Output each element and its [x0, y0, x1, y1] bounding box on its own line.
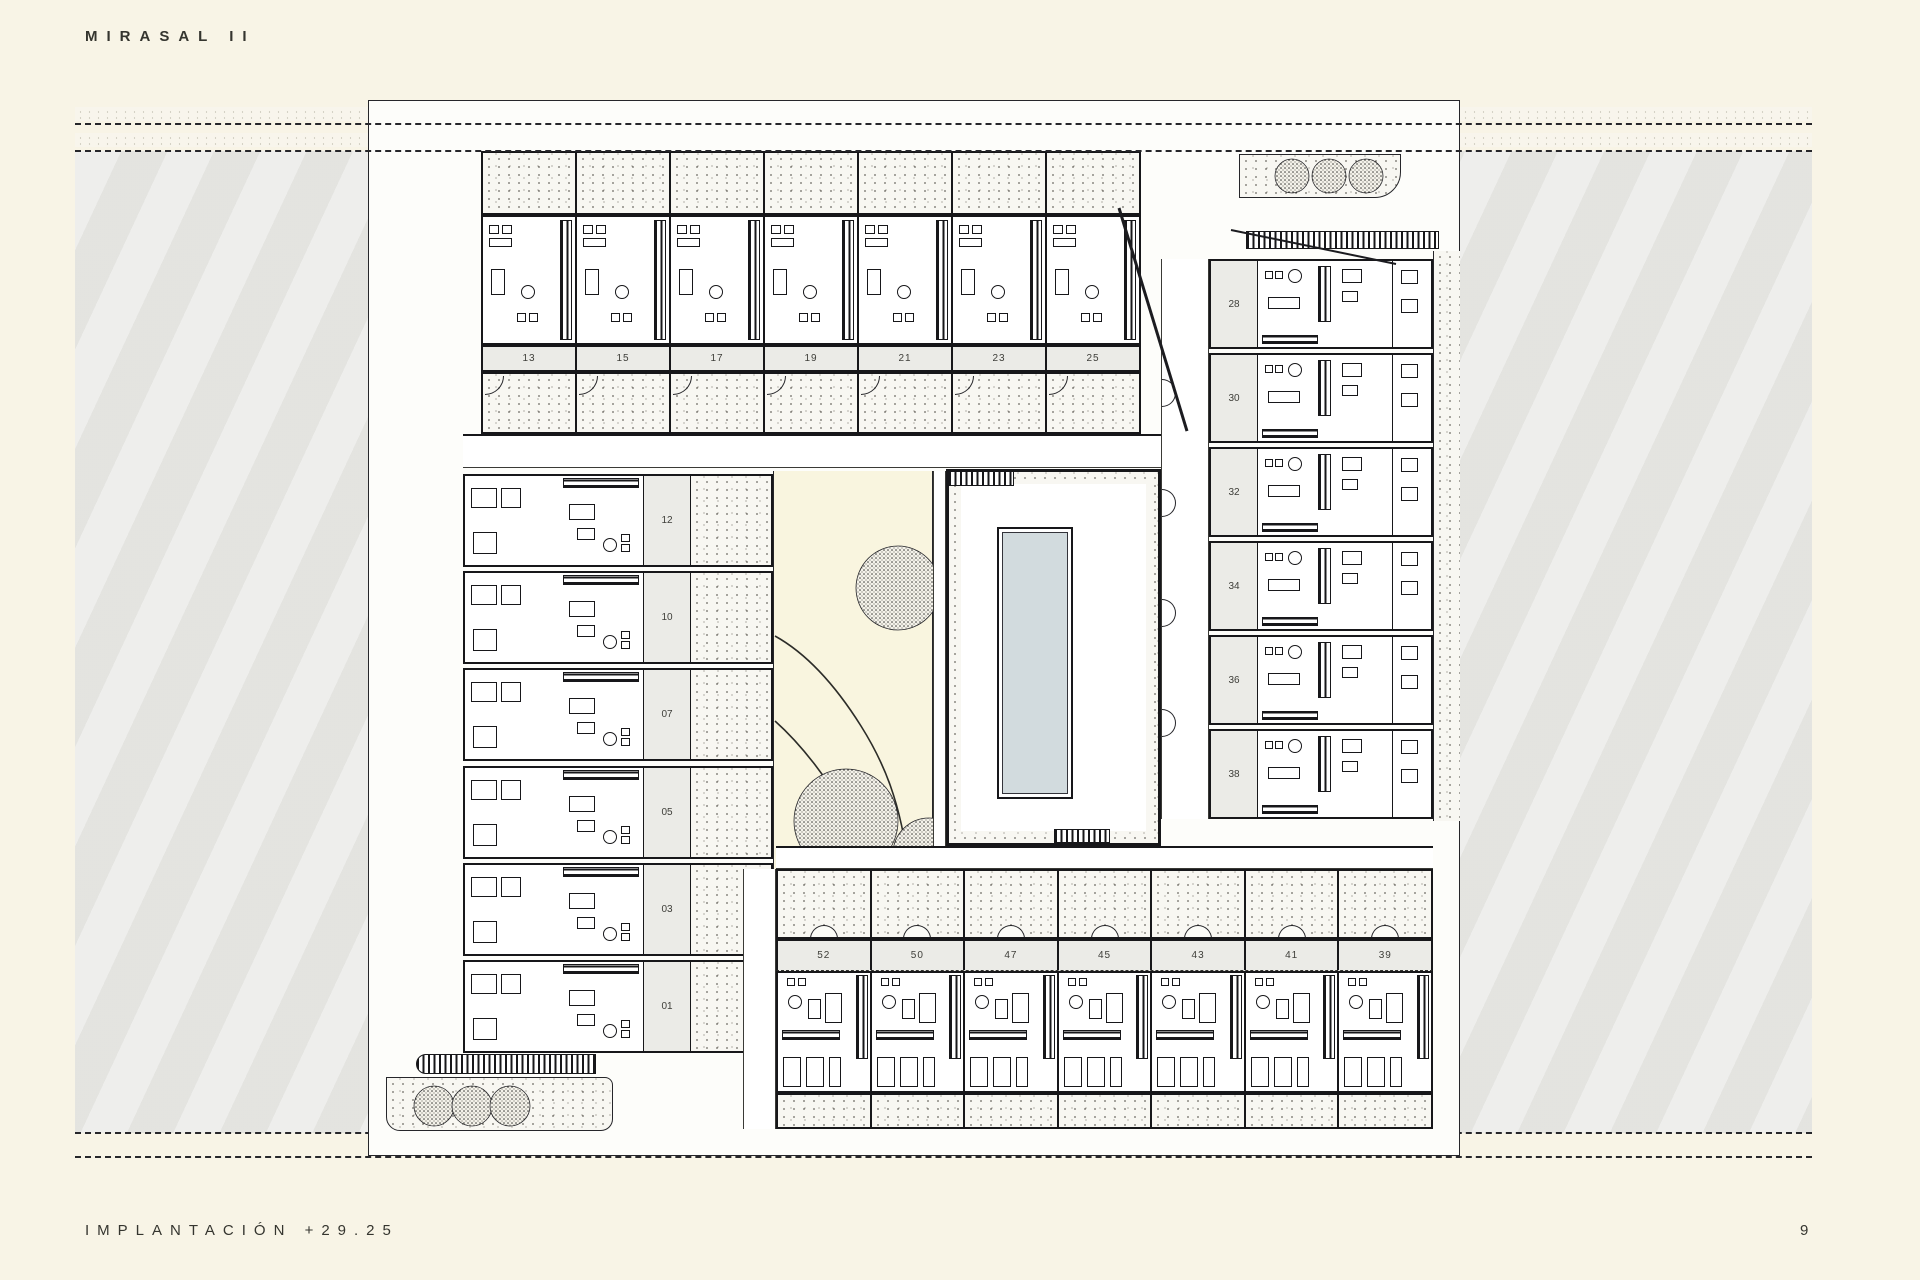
plan-cell [857, 153, 951, 213]
plan-cell [1057, 973, 1151, 1091]
furniture-icon [811, 313, 820, 322]
unit-number-label: 36 [1211, 637, 1258, 723]
furniture-icon [473, 532, 497, 554]
unit-number-label: 47 [963, 941, 1057, 970]
unit-number-label: 15 [575, 347, 669, 370]
unit-terrace [691, 768, 771, 857]
furniture-icon [569, 698, 595, 714]
unit-number-label: 39 [1337, 941, 1431, 970]
stairs-icon [969, 1030, 1027, 1040]
unit-number: 52 [817, 950, 830, 961]
plan-cell [963, 1095, 1057, 1127]
stairs-icon [1262, 617, 1318, 626]
unit-number: 34 [1228, 581, 1239, 592]
unit-number-label: 43 [1150, 941, 1244, 970]
furniture-icon [679, 269, 693, 295]
furniture-icon [501, 488, 521, 508]
furniture-icon [1268, 673, 1300, 685]
left-wing: 121007050301 [463, 474, 773, 1053]
furniture-icon [1359, 978, 1367, 986]
table-icon [1288, 645, 1302, 659]
furniture-icon [1401, 646, 1418, 660]
pool-hall-floor [961, 484, 1146, 831]
door-swing-icon [955, 376, 974, 395]
stairs-icon [563, 964, 639, 974]
top-row-interiors [481, 215, 1141, 345]
unit-number: 50 [911, 950, 924, 961]
furniture-icon [1401, 458, 1418, 472]
unit-terrace [1393, 637, 1431, 723]
unit-number-label: 01 [644, 962, 691, 1051]
furniture-icon [623, 313, 632, 322]
table-icon [1288, 269, 1302, 283]
furniture-icon [1276, 999, 1289, 1019]
plan-cell [870, 973, 964, 1091]
unit-floorplan [465, 476, 644, 565]
bottom-row-interiors [776, 971, 1433, 1093]
table-icon [521, 285, 535, 299]
furniture-icon [808, 999, 821, 1019]
furniture-icon [583, 225, 593, 234]
table-icon [1069, 995, 1083, 1009]
table-icon [603, 635, 617, 649]
furniture-icon [1266, 978, 1274, 986]
unit-floorplan [1258, 355, 1393, 441]
furniture-icon [577, 1014, 595, 1026]
unit-number: 38 [1228, 769, 1239, 780]
door-swing-icon [485, 376, 504, 395]
furniture-icon [1268, 391, 1300, 403]
table-icon [991, 285, 1005, 299]
furniture-icon [611, 313, 620, 322]
furniture-icon [1268, 579, 1300, 591]
stairs-icon [1136, 975, 1148, 1059]
tree-icons [1240, 155, 1402, 199]
unit-row: 05 [463, 766, 773, 859]
furniture-icon [621, 923, 630, 931]
walkway [1161, 259, 1209, 819]
door-swing-icon [903, 925, 931, 937]
table-icon [603, 830, 617, 844]
furniture-icon [1342, 573, 1358, 584]
stairs-icon [1262, 711, 1318, 720]
stairs-icon [563, 770, 639, 780]
plan-cell [1244, 1095, 1338, 1127]
furniture-icon [489, 225, 499, 234]
furniture-icon [1367, 1057, 1385, 1087]
furniture-icon [1012, 993, 1029, 1023]
door-swing-icon [1091, 925, 1119, 937]
unit-number: 17 [710, 353, 723, 364]
unit-terrace [691, 476, 771, 565]
stairs-icon [560, 220, 572, 340]
plan-cell [1045, 217, 1139, 343]
furniture-icon [1199, 993, 1216, 1023]
door-swing-icon [1278, 925, 1306, 937]
furniture-icon [621, 728, 630, 736]
furniture-icon [621, 933, 630, 941]
furniture-icon [974, 978, 982, 986]
furniture-icon [1342, 645, 1362, 659]
furniture-icon [1342, 363, 1362, 377]
corridor [463, 434, 1181, 468]
furniture-icon [1401, 581, 1418, 595]
furniture-icon [959, 238, 982, 247]
furniture-icon [798, 978, 806, 986]
furniture-icon [806, 1057, 824, 1087]
plan-cell [669, 153, 763, 213]
furniture-icon [865, 225, 875, 234]
plan-cell [951, 153, 1045, 213]
entry-grille [416, 1054, 596, 1074]
furniture-icon [517, 313, 526, 322]
unit-number-label: 23 [951, 347, 1045, 370]
unit-row: 07 [463, 668, 773, 761]
unit-number: 28 [1228, 299, 1239, 310]
stairs-icon [563, 575, 639, 585]
unit-number-label: 50 [870, 941, 964, 970]
furniture-icon [787, 978, 795, 986]
stairs-icon [782, 1030, 840, 1040]
furniture-icon [1081, 313, 1090, 322]
furniture-icon [1401, 740, 1418, 754]
furniture-icon [473, 726, 497, 748]
unit-row: 38 [1209, 729, 1433, 819]
furniture-icon [1401, 299, 1418, 313]
furniture-icon [621, 826, 630, 834]
tree-icon [490, 1086, 530, 1126]
furniture-icon [1251, 1057, 1269, 1087]
furniture-icon [1401, 393, 1418, 407]
plan-cell [575, 153, 669, 213]
site-plan: 13151719212325 121007050301 [368, 100, 1460, 1156]
furniture-icon [621, 534, 630, 542]
furniture-icon [1161, 978, 1169, 986]
furniture-icon [959, 225, 969, 234]
furniture-icon [577, 625, 595, 637]
furniture-icon [1297, 1057, 1309, 1087]
furniture-icon [1066, 225, 1076, 234]
furniture-icon [867, 269, 881, 295]
unit-number: 36 [1228, 675, 1239, 686]
unit-number-label: 34 [1211, 543, 1258, 629]
right-wing-terrace-strip [1433, 251, 1460, 821]
furniture-icon [569, 990, 595, 1006]
plan-cell [778, 973, 870, 1091]
stairs-icon [1318, 360, 1331, 416]
furniture-icon [1182, 999, 1195, 1019]
furniture-icon [987, 313, 996, 322]
plan-cell [1057, 1095, 1151, 1127]
furniture-icon [1016, 1057, 1028, 1087]
door-swing-icon [1162, 489, 1176, 517]
furniture-icon [1275, 271, 1283, 279]
table-icon [788, 995, 802, 1009]
unit-number-label: 28 [1211, 261, 1258, 347]
table-icon [603, 732, 617, 746]
corridor [776, 846, 1433, 869]
unit-number-label: 45 [1057, 941, 1151, 970]
boundary-dashed-line [75, 123, 1812, 125]
furniture-icon [577, 722, 595, 734]
furniture-icon [577, 528, 595, 540]
furniture-icon [1344, 1057, 1362, 1087]
unit-number: 19 [804, 353, 817, 364]
furniture-icon [1180, 1057, 1198, 1087]
stairs-icon [1318, 736, 1331, 792]
tree-icon [414, 1086, 454, 1126]
furniture-icon [1342, 761, 1358, 772]
furniture-icon [501, 877, 521, 897]
furniture-icon [878, 225, 888, 234]
stairs-icon [1230, 975, 1242, 1059]
unit-number-label: 38 [1211, 731, 1258, 817]
furniture-icon [471, 488, 497, 508]
plan-cell [1337, 1095, 1431, 1127]
table-icon [882, 995, 896, 1009]
unit-floorplan [1258, 637, 1393, 723]
stairs-icon [1417, 975, 1429, 1059]
furniture-icon [1110, 1057, 1122, 1087]
furniture-icon [501, 585, 521, 605]
unit-number: 32 [1228, 487, 1239, 498]
plan-cell [483, 217, 575, 343]
table-icon [709, 285, 723, 299]
plan-cell [1045, 374, 1139, 432]
table-icon [1349, 995, 1363, 1009]
swimming-pool [1002, 532, 1068, 794]
furniture-icon [501, 682, 521, 702]
plan-cell [763, 153, 857, 213]
furniture-icon [471, 585, 497, 605]
furniture-icon [1275, 553, 1283, 561]
unit-number-label: 07 [644, 670, 691, 759]
plan-cell [763, 374, 857, 432]
furniture-icon [1390, 1057, 1402, 1087]
unit-row: 32 [1209, 447, 1433, 537]
stairs-icon [1318, 548, 1331, 604]
table-icon [1288, 457, 1302, 471]
door-swing-icon [673, 376, 692, 395]
unit-number: 45 [1098, 950, 1111, 961]
unit-terrace [691, 573, 771, 662]
furniture-icon [1265, 365, 1273, 373]
top-row-patios [481, 372, 1141, 434]
furniture-icon [501, 974, 521, 994]
top-row-terraces [481, 151, 1141, 215]
door-swing-icon [579, 376, 598, 395]
stairs-icon [1043, 975, 1055, 1059]
furniture-icon [993, 1057, 1011, 1087]
unit-number-label: 03 [644, 865, 691, 954]
plan-cell [951, 217, 1045, 343]
plan-cell [763, 217, 857, 343]
furniture-icon [717, 313, 726, 322]
page-number: 9 [1800, 1222, 1808, 1239]
planter-bed [1239, 154, 1401, 198]
courtyard-garden [773, 471, 933, 877]
furniture-icon [1348, 978, 1356, 986]
unit-terrace [1393, 449, 1431, 535]
furniture-icon [1342, 291, 1358, 302]
plan-cell [778, 871, 870, 937]
planter-bed [386, 1077, 613, 1131]
furniture-icon [583, 238, 606, 247]
furniture-icon [773, 269, 787, 295]
stairs-icon [842, 220, 854, 340]
furniture-icon [1106, 993, 1123, 1023]
plan-cell [669, 374, 763, 432]
unit-number-label: 12 [644, 476, 691, 565]
table-icon [603, 1024, 617, 1038]
plan-cell [870, 1095, 964, 1127]
furniture-icon [471, 877, 497, 897]
furniture-icon [1087, 1057, 1105, 1087]
furniture-icon [970, 1057, 988, 1087]
furniture-icon [621, 1020, 630, 1028]
boundary-dashed-line [75, 150, 1812, 152]
stairs-icon [563, 478, 639, 488]
furniture-icon [900, 1057, 918, 1087]
plan-cell [778, 1095, 870, 1127]
furniture-icon [473, 921, 497, 943]
right-wing: 283032343638 [1209, 259, 1433, 819]
stairs-icon [1318, 266, 1331, 322]
stairs-icon [1318, 454, 1331, 510]
plan-cell [1244, 973, 1338, 1091]
plan-cell [575, 374, 669, 432]
unit-row: 10 [463, 571, 773, 664]
furniture-icon [1268, 485, 1300, 497]
unit-number: 15 [616, 353, 629, 364]
unit-number-label: 30 [1211, 355, 1258, 441]
table-icon [603, 538, 617, 552]
stipple-strip [1460, 133, 1812, 147]
unit-number: 13 [522, 353, 535, 364]
unit-row: 01 [463, 960, 773, 1053]
unit-row: 28 [1209, 259, 1433, 349]
furniture-icon [569, 893, 595, 909]
drawing-sheet: MIRASAL II 13151719212325 121007050301 [0, 0, 1920, 1280]
stairs-icon [654, 220, 666, 340]
furniture-icon [473, 824, 497, 846]
plan-cell [669, 217, 763, 343]
door-swing-icon [861, 376, 880, 395]
entry-grille [1246, 231, 1439, 249]
furniture-icon [529, 313, 538, 322]
furniture-icon [881, 978, 889, 986]
unit-number: 05 [661, 807, 672, 818]
plan-cell [870, 871, 964, 937]
furniture-icon [471, 682, 497, 702]
furniture-icon [1068, 978, 1076, 986]
unit-number-label: 25 [1045, 347, 1139, 370]
walkway [743, 869, 776, 1129]
furniture-icon [577, 820, 595, 832]
stairs-icon [1156, 1030, 1214, 1040]
plan-cell [963, 871, 1057, 937]
furniture-icon [893, 313, 902, 322]
plan-cell [1150, 871, 1244, 937]
furniture-icon [1342, 479, 1358, 490]
furniture-icon [473, 1018, 497, 1040]
furniture-icon [1157, 1057, 1175, 1087]
stairs-icon [1262, 523, 1318, 532]
furniture-icon [677, 225, 687, 234]
stairs-icon [563, 672, 639, 682]
furniture-icon [596, 225, 606, 234]
furniture-icon [1093, 313, 1102, 322]
unit-row: 30 [1209, 353, 1433, 443]
unit-row: 34 [1209, 541, 1433, 631]
furniture-icon [1342, 667, 1358, 678]
unit-floorplan [465, 670, 644, 759]
furniture-icon [1079, 978, 1087, 986]
stairs-icon [748, 220, 760, 340]
table-icon [1288, 551, 1302, 565]
furniture-icon [825, 993, 842, 1023]
furniture-icon [621, 738, 630, 746]
plan-cell [1337, 973, 1431, 1091]
unit-floorplan [1258, 543, 1393, 629]
plan-cell [1057, 871, 1151, 937]
furniture-icon [1275, 647, 1283, 655]
furniture-icon [677, 238, 700, 247]
furniture-icon [621, 544, 630, 552]
stipple-strip [75, 107, 368, 121]
furniture-icon [585, 269, 599, 295]
unit-number: 47 [1004, 950, 1017, 961]
boundary-dashed-line [75, 1156, 1812, 1158]
tree-icon [1349, 159, 1383, 193]
furniture-icon [1342, 385, 1358, 396]
unit-floorplan [465, 768, 644, 857]
door-swing-icon [1049, 376, 1068, 395]
unit-floorplan [1258, 261, 1393, 347]
stairs-icon [949, 975, 961, 1059]
unit-floorplan [465, 573, 644, 662]
furniture-icon [473, 629, 497, 651]
furniture-icon [621, 631, 630, 639]
stairs-icon [1262, 805, 1318, 814]
furniture-icon [1255, 978, 1263, 986]
unit-number-label: 13 [483, 347, 575, 370]
furniture-icon [1401, 552, 1418, 566]
plan-cell [483, 374, 575, 432]
furniture-icon [489, 238, 512, 247]
tree-icon [452, 1086, 492, 1126]
stairs-icon [1063, 1030, 1121, 1040]
unit-number: 03 [661, 904, 672, 915]
furniture-icon [569, 601, 595, 617]
furniture-icon [1342, 457, 1362, 471]
unit-number-label: 17 [669, 347, 763, 370]
unit-number-label: 21 [857, 347, 951, 370]
plan-cell [857, 217, 951, 343]
furniture-icon [1265, 459, 1273, 467]
furniture-icon [621, 641, 630, 649]
door-swing-icon [1371, 925, 1399, 937]
unit-number: 07 [661, 709, 672, 720]
plan-cell [1045, 153, 1139, 213]
furniture-icon [1268, 767, 1300, 779]
furniture-icon [1342, 269, 1362, 283]
furniture-icon [1369, 999, 1382, 1019]
furniture-icon [577, 917, 595, 929]
stairs-icon [1262, 429, 1318, 438]
furniture-icon [972, 225, 982, 234]
stairs-icon [876, 1030, 934, 1040]
